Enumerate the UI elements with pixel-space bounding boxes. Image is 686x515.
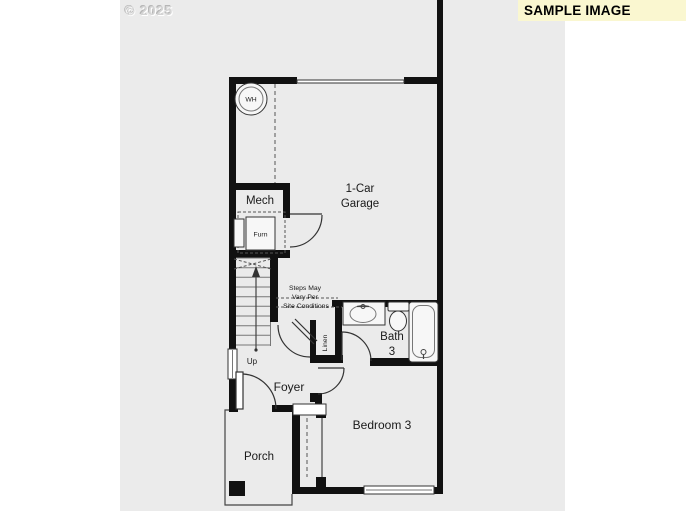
porch-label: Porch: [244, 451, 274, 463]
mech-door: [290, 214, 322, 247]
mech-top-wall: [236, 183, 290, 190]
steps-note-line2: Vary Per: [292, 294, 319, 301]
toilet-tank: [388, 302, 409, 311]
mech-right-wall: [283, 190, 290, 218]
entry-strip-window: [293, 404, 326, 415]
foyer-label: Foyer: [274, 380, 305, 394]
staircase: [234, 258, 271, 352]
garage-top-wall-left: [229, 77, 297, 84]
right-wall: [437, 0, 443, 494]
porch-post: [229, 481, 245, 496]
mech-label: Mech: [246, 195, 274, 207]
stair-right-wall: [270, 258, 278, 322]
linen-label: Linen: [322, 334, 329, 351]
furnace-label: Furn: [254, 232, 268, 239]
linen-bottom-wall: [310, 355, 343, 363]
furnace-duct: [234, 219, 244, 247]
floor-plan-drawing: WH Furn 1-Car Garage Mech: [0, 0, 686, 515]
steps-note-line1: Steps May: [289, 285, 322, 292]
furnace: Furn: [234, 212, 285, 253]
entry-strip-post-bottom: [316, 477, 326, 490]
water-heater-label: WH: [245, 97, 256, 104]
entry-strip-left-wall: [292, 412, 300, 492]
bath-door: [342, 332, 371, 361]
bath-label-line2: 3: [389, 346, 395, 358]
front-door: [236, 372, 276, 409]
garage-door-opening: [297, 80, 404, 83]
up-arrow-dot: [254, 348, 257, 351]
steps-note-line3: Site Conditions: [283, 303, 329, 310]
garage-label-line1: 1-Car: [346, 183, 375, 195]
left-wall-upper: [229, 84, 236, 350]
bath-left-wall: [335, 307, 342, 357]
floor-plan-page: © 2025 SAMPLE IMAGE: [0, 0, 686, 515]
water-heater: WH: [235, 83, 267, 115]
toilet-bowl: [390, 311, 407, 331]
entry-strip-detail: [307, 418, 322, 477]
garage-top-wall-right: [404, 77, 443, 84]
stair-up-arrow: [252, 266, 260, 352]
bedroom-door: [318, 368, 344, 394]
bathtub: [409, 302, 438, 362]
up-label: Up: [247, 357, 258, 366]
front-door-leaf: [236, 372, 243, 409]
bath-label-line1: Bath: [380, 331, 404, 343]
garage-label-line2: Garage: [341, 198, 379, 210]
bedroom-label: Bedroom 3: [353, 418, 412, 432]
